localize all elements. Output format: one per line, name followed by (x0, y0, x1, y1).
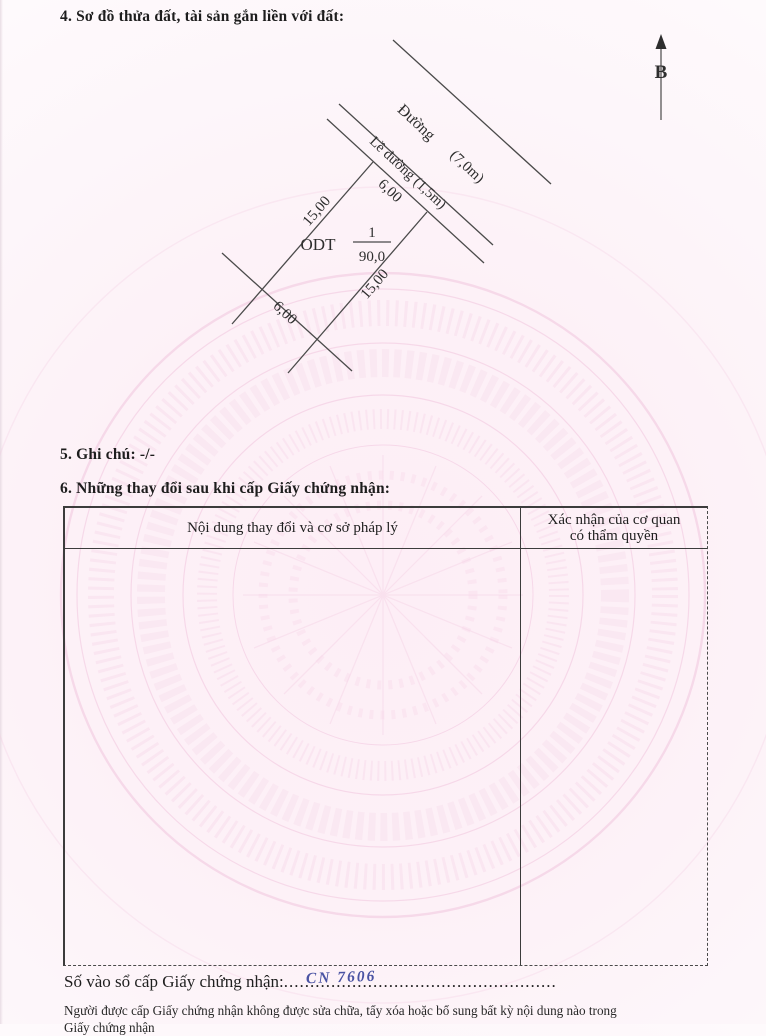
serial-label: Số vào sổ cấp Giấy chứng nhận: (64, 972, 284, 991)
parcel-code-label: ODT (301, 235, 337, 254)
north-label: B (655, 62, 668, 83)
changes-table-col1-cell (65, 549, 520, 965)
dim-bottom-label: 6,00 (270, 298, 300, 328)
footer-note-line1: Người được cấp Giấy chứng nhận không đượ… (64, 1003, 710, 1019)
section6-title: 6. Những thay đổi sau khi cấp Giấy chứng… (60, 480, 390, 498)
road-edge-bottom-line (339, 104, 493, 245)
serial-handwritten-value: CN 7606 (306, 968, 377, 988)
section5-title: 5. Ghi chú: -/- (60, 446, 155, 464)
road-width-label: (7,0m) (446, 147, 486, 186)
changes-table-header-row: Nội dung thay đổi và cơ sở pháp lý Xác n… (65, 508, 707, 549)
scan-edge (0, 0, 3, 1024)
shoulder-label: Lề đường (1,5m) (366, 134, 449, 213)
changes-table: Nội dung thay đổi và cơ sở pháp lý Xác n… (63, 506, 708, 966)
parcel-bottom-side-line (222, 253, 352, 371)
changes-table-col1-header: Nội dung thay đổi và cơ sở pháp lý (65, 508, 520, 548)
parcel-area-label: 90,0 (359, 249, 385, 265)
dim-left-label: 15,00 (300, 193, 334, 229)
dim-right-label: 15,00 (358, 266, 392, 302)
section4-title: 4. Sơ đồ thửa đất, tài sản gắn liền với … (60, 8, 344, 26)
dim-top-label: 6,00 (375, 176, 405, 206)
parcel-number-label: 1 (368, 225, 376, 241)
road-label: Đường (394, 101, 438, 144)
changes-table-body-row (65, 549, 707, 965)
parcel-right-side-line (288, 212, 427, 373)
road-edge-top-line (393, 40, 551, 184)
shoulder-edge-line (327, 119, 484, 263)
north-arrow-head (656, 34, 667, 49)
changes-table-col2-header: Xác nhận của cơ quan có thẩm quyền (520, 508, 707, 548)
changes-table-col2-cell (520, 549, 707, 965)
parcel-left-side-line (232, 162, 373, 324)
serial-number-line: Số vào sổ cấp Giấy chứng nhận:..........… (64, 972, 557, 992)
footer-note-line2-clipped: Giấy chứng nhận (64, 1020, 710, 1036)
